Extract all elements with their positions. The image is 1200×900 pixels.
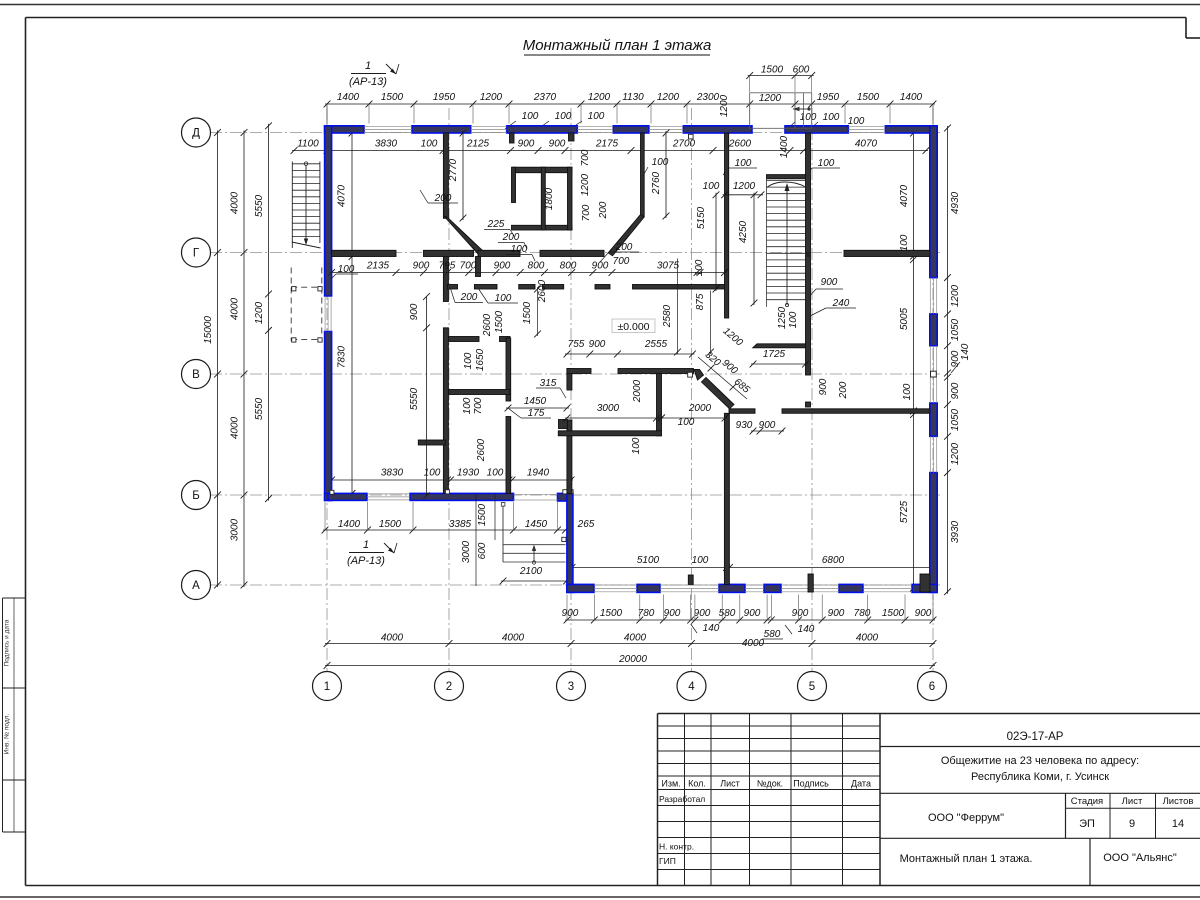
svg-text:5100: 5100 bbox=[637, 555, 660, 566]
svg-text:100: 100 bbox=[788, 311, 799, 328]
svg-text:Республика Коми, г. Усинск: Республика Коми, г. Усинск bbox=[971, 771, 1109, 783]
svg-text:1500: 1500 bbox=[381, 92, 404, 103]
svg-text:1200: 1200 bbox=[733, 181, 756, 192]
svg-text:Б: Б bbox=[192, 490, 200, 502]
svg-text:2125: 2125 bbox=[466, 139, 490, 150]
svg-text:5550: 5550 bbox=[409, 387, 420, 410]
svg-text:100: 100 bbox=[511, 244, 528, 255]
svg-text:700: 700 bbox=[460, 261, 477, 272]
svg-text:1: 1 bbox=[365, 60, 371, 72]
svg-text:20000: 20000 bbox=[618, 654, 647, 665]
svg-text:2000: 2000 bbox=[688, 403, 712, 414]
svg-text:1500: 1500 bbox=[761, 65, 784, 76]
svg-text:100: 100 bbox=[522, 111, 539, 122]
svg-text:315: 315 bbox=[540, 378, 557, 389]
svg-text:5005: 5005 bbox=[899, 307, 910, 330]
svg-text:1400: 1400 bbox=[337, 92, 360, 103]
svg-text:В: В bbox=[192, 369, 200, 381]
svg-text:1200: 1200 bbox=[759, 93, 782, 104]
svg-text:580: 580 bbox=[764, 629, 781, 640]
svg-text:2000: 2000 bbox=[632, 379, 643, 403]
svg-text:2555: 2555 bbox=[644, 339, 668, 350]
svg-text:3385: 3385 bbox=[449, 519, 472, 530]
svg-text:100: 100 bbox=[899, 234, 910, 251]
svg-text:200: 200 bbox=[598, 201, 609, 219]
svg-text:100: 100 bbox=[823, 112, 840, 123]
svg-text:Д: Д bbox=[192, 128, 200, 140]
svg-text:Кол.: Кол. bbox=[688, 779, 706, 789]
svg-text:1050: 1050 bbox=[950, 408, 961, 431]
svg-text:6800: 6800 bbox=[822, 555, 845, 566]
svg-text:1130: 1130 bbox=[622, 92, 644, 103]
svg-text:1500: 1500 bbox=[857, 92, 880, 103]
svg-text:4000: 4000 bbox=[381, 633, 404, 644]
svg-text:14: 14 bbox=[1172, 818, 1184, 830]
svg-text:(АР-13): (АР-13) bbox=[347, 555, 385, 567]
svg-text:200: 200 bbox=[460, 292, 478, 303]
svg-text:5550: 5550 bbox=[254, 194, 265, 217]
svg-text:15000: 15000 bbox=[203, 316, 214, 344]
svg-text:1450: 1450 bbox=[524, 396, 547, 407]
svg-text:1200: 1200 bbox=[950, 284, 961, 307]
svg-text:900: 900 bbox=[409, 303, 420, 320]
svg-text:3000: 3000 bbox=[461, 540, 472, 563]
svg-text:100: 100 bbox=[735, 158, 752, 169]
svg-text:140: 140 bbox=[703, 623, 720, 634]
svg-text:Разработал: Разработал bbox=[659, 794, 705, 804]
svg-text:930: 930 bbox=[736, 420, 753, 431]
svg-text:2600: 2600 bbox=[537, 279, 548, 303]
svg-text:100: 100 bbox=[588, 111, 605, 122]
svg-text:100: 100 bbox=[462, 397, 473, 414]
svg-text:100: 100 bbox=[631, 437, 642, 454]
svg-text:4: 4 bbox=[688, 681, 695, 693]
svg-text:ГИП: ГИП bbox=[659, 856, 676, 866]
svg-text:140: 140 bbox=[798, 624, 815, 635]
svg-text:4000: 4000 bbox=[502, 633, 525, 644]
svg-text:±0.000: ±0.000 bbox=[617, 321, 649, 333]
svg-text:700: 700 bbox=[581, 204, 592, 221]
svg-text:2600: 2600 bbox=[728, 139, 752, 150]
svg-text:4070: 4070 bbox=[899, 184, 910, 207]
svg-text:900: 900 bbox=[818, 378, 829, 395]
svg-text:900: 900 bbox=[828, 608, 845, 619]
svg-text:1500: 1500 bbox=[882, 608, 905, 619]
svg-text:Общежитие на 23 человека по ад: Общежитие на 23 человека по адресу: bbox=[941, 755, 1139, 767]
svg-text:1500: 1500 bbox=[379, 519, 402, 530]
svg-text:1200: 1200 bbox=[254, 301, 265, 324]
svg-text:4000: 4000 bbox=[856, 633, 879, 644]
svg-text:А: А bbox=[192, 580, 200, 592]
svg-text:4070: 4070 bbox=[337, 184, 348, 207]
svg-text:1500: 1500 bbox=[494, 310, 505, 333]
svg-text:100: 100 bbox=[338, 264, 355, 275]
svg-text:900: 900 bbox=[821, 277, 838, 288]
svg-text:2100: 2100 bbox=[519, 566, 543, 577]
svg-text:5: 5 bbox=[809, 681, 815, 693]
svg-text:200: 200 bbox=[615, 242, 633, 253]
svg-text:100: 100 bbox=[902, 383, 913, 400]
svg-text:6: 6 bbox=[929, 681, 935, 693]
svg-text:5725: 5725 bbox=[899, 500, 910, 523]
svg-text:4000: 4000 bbox=[230, 191, 241, 214]
svg-text:1950: 1950 bbox=[433, 92, 456, 103]
svg-text:Лист: Лист bbox=[1122, 796, 1143, 807]
svg-text:1500: 1500 bbox=[522, 301, 533, 324]
svg-text:600: 600 bbox=[793, 65, 810, 76]
svg-text:265: 265 bbox=[577, 519, 595, 530]
svg-text:Дата: Дата bbox=[851, 779, 871, 789]
svg-text:900: 900 bbox=[589, 339, 606, 350]
svg-text:1: 1 bbox=[363, 539, 369, 551]
svg-text:1050: 1050 bbox=[950, 318, 961, 341]
svg-text:3075: 3075 bbox=[657, 261, 680, 272]
svg-text:795: 795 bbox=[439, 261, 456, 272]
svg-text:1200: 1200 bbox=[950, 442, 961, 465]
svg-text:900: 900 bbox=[549, 139, 566, 150]
svg-text:Листов: Листов bbox=[1163, 796, 1194, 807]
svg-text:1650: 1650 bbox=[475, 348, 486, 371]
svg-text:1500: 1500 bbox=[477, 503, 488, 526]
svg-text:1200: 1200 bbox=[588, 92, 611, 103]
svg-text:1250: 1250 bbox=[777, 306, 788, 329]
svg-text:140: 140 bbox=[960, 343, 971, 360]
svg-text:1725: 1725 bbox=[763, 349, 786, 360]
svg-text:2600: 2600 bbox=[476, 438, 487, 462]
svg-text:1930: 1930 bbox=[457, 468, 480, 479]
svg-text:2700: 2700 bbox=[672, 139, 696, 150]
svg-text:225: 225 bbox=[487, 219, 505, 230]
svg-text:900: 900 bbox=[518, 139, 535, 150]
svg-text:5150: 5150 bbox=[696, 206, 707, 229]
svg-text:755: 755 bbox=[568, 339, 585, 350]
svg-text:580: 580 bbox=[719, 608, 736, 619]
svg-text:1400: 1400 bbox=[338, 519, 361, 530]
svg-text:1200: 1200 bbox=[719, 94, 730, 117]
svg-text:(АР-13): (АР-13) bbox=[349, 76, 387, 88]
svg-text:1950: 1950 bbox=[817, 92, 840, 103]
svg-text:100: 100 bbox=[703, 181, 720, 192]
svg-text:Г: Г bbox=[193, 248, 200, 260]
svg-text:1100: 1100 bbox=[297, 139, 319, 150]
svg-text:Инв. № подл.: Инв. № подл. bbox=[4, 714, 11, 755]
svg-text:200: 200 bbox=[838, 381, 849, 399]
svg-text:1940: 1940 bbox=[527, 468, 550, 479]
svg-text:900: 900 bbox=[792, 608, 809, 619]
svg-text:1200: 1200 bbox=[657, 92, 680, 103]
svg-text:100: 100 bbox=[848, 116, 865, 127]
svg-text:100: 100 bbox=[692, 555, 709, 566]
svg-text:4000: 4000 bbox=[742, 638, 765, 649]
svg-text:3000: 3000 bbox=[597, 403, 620, 414]
svg-text:3000: 3000 bbox=[230, 518, 241, 541]
svg-text:3: 3 bbox=[568, 681, 574, 693]
svg-text:1200: 1200 bbox=[580, 173, 591, 196]
svg-text:№док.: №док. bbox=[757, 779, 783, 789]
svg-text:5550: 5550 bbox=[254, 397, 265, 420]
svg-text:ЭП: ЭП bbox=[1079, 818, 1095, 830]
svg-text:700: 700 bbox=[613, 256, 630, 267]
svg-text:4000: 4000 bbox=[230, 416, 241, 439]
svg-text:100: 100 bbox=[818, 158, 835, 169]
svg-text:1: 1 bbox=[324, 681, 330, 693]
svg-text:1800: 1800 bbox=[544, 187, 555, 210]
svg-text:900: 900 bbox=[694, 608, 711, 619]
svg-text:800: 800 bbox=[528, 261, 545, 272]
svg-text:7830: 7830 bbox=[337, 345, 348, 368]
svg-text:ООО "Феррум": ООО "Феррум" bbox=[928, 812, 1004, 824]
svg-text:100: 100 bbox=[487, 468, 504, 479]
svg-text:2175: 2175 bbox=[595, 139, 619, 150]
svg-text:700: 700 bbox=[473, 397, 484, 414]
svg-text:2135: 2135 bbox=[366, 261, 390, 272]
svg-text:4250: 4250 bbox=[738, 220, 749, 243]
svg-text:900: 900 bbox=[664, 608, 681, 619]
svg-text:2: 2 bbox=[446, 681, 452, 693]
svg-text:175: 175 bbox=[528, 408, 545, 419]
svg-text:900: 900 bbox=[494, 261, 511, 272]
svg-text:1400: 1400 bbox=[900, 92, 923, 103]
svg-text:800: 800 bbox=[560, 261, 577, 272]
svg-text:700: 700 bbox=[580, 149, 591, 166]
svg-text:1200: 1200 bbox=[480, 92, 503, 103]
svg-text:ООО "Альянс": ООО "Альянс" bbox=[1103, 852, 1177, 864]
svg-text:4000: 4000 bbox=[624, 633, 647, 644]
svg-text:Стадия: Стадия bbox=[1071, 796, 1103, 807]
svg-text:100: 100 bbox=[421, 139, 438, 150]
svg-text:9: 9 bbox=[1129, 818, 1135, 830]
svg-text:1500: 1500 bbox=[600, 608, 623, 619]
svg-text:900: 900 bbox=[562, 608, 579, 619]
svg-text:Подпись: Подпись bbox=[793, 779, 829, 789]
svg-text:3830: 3830 bbox=[375, 139, 398, 150]
svg-text:240: 240 bbox=[832, 298, 850, 309]
svg-text:2580: 2580 bbox=[662, 304, 673, 328]
svg-text:Монтажный план 1 этажа.: Монтажный план 1 этажа. bbox=[900, 853, 1033, 865]
svg-text:4930: 4930 bbox=[950, 191, 961, 214]
svg-text:2760: 2760 bbox=[651, 171, 662, 195]
svg-text:600: 600 bbox=[477, 542, 488, 559]
svg-text:Монтажный план 1 этажа: Монтажный план 1 этажа bbox=[523, 37, 712, 54]
svg-text:780: 780 bbox=[854, 608, 871, 619]
svg-text:100: 100 bbox=[463, 352, 474, 369]
svg-text:900: 900 bbox=[413, 261, 430, 272]
svg-text:100: 100 bbox=[555, 111, 572, 122]
svg-text:900: 900 bbox=[744, 608, 761, 619]
svg-text:200: 200 bbox=[434, 193, 452, 204]
svg-text:1400: 1400 bbox=[779, 135, 790, 158]
svg-text:4070: 4070 bbox=[855, 139, 878, 150]
svg-text:900: 900 bbox=[915, 608, 932, 619]
svg-text:Н. контр.: Н. контр. bbox=[659, 842, 694, 852]
svg-text:3830: 3830 bbox=[381, 468, 404, 479]
svg-text:3930: 3930 bbox=[950, 520, 961, 543]
svg-text:2370: 2370 bbox=[533, 92, 557, 103]
svg-text:2600: 2600 bbox=[482, 313, 493, 337]
svg-text:100: 100 bbox=[678, 417, 695, 428]
svg-text:2300: 2300 bbox=[696, 92, 720, 103]
svg-text:100: 100 bbox=[495, 293, 512, 304]
svg-text:900: 900 bbox=[950, 382, 961, 399]
svg-text:Лист: Лист bbox=[720, 779, 740, 789]
svg-text:100: 100 bbox=[652, 157, 669, 168]
svg-text:200: 200 bbox=[502, 232, 520, 243]
svg-text:02Э-17-АР: 02Э-17-АР bbox=[1007, 731, 1064, 743]
svg-text:Изм.: Изм. bbox=[661, 779, 680, 789]
svg-text:100: 100 bbox=[694, 259, 705, 276]
svg-text:100: 100 bbox=[800, 112, 817, 123]
svg-text:875: 875 bbox=[695, 293, 706, 310]
svg-text:4000: 4000 bbox=[230, 297, 241, 320]
svg-text:Подпись и дата: Подпись и дата bbox=[4, 619, 11, 666]
svg-text:900: 900 bbox=[759, 420, 776, 431]
svg-text:2770: 2770 bbox=[448, 158, 459, 182]
svg-text:780: 780 bbox=[638, 608, 655, 619]
svg-text:1450: 1450 bbox=[525, 519, 548, 530]
